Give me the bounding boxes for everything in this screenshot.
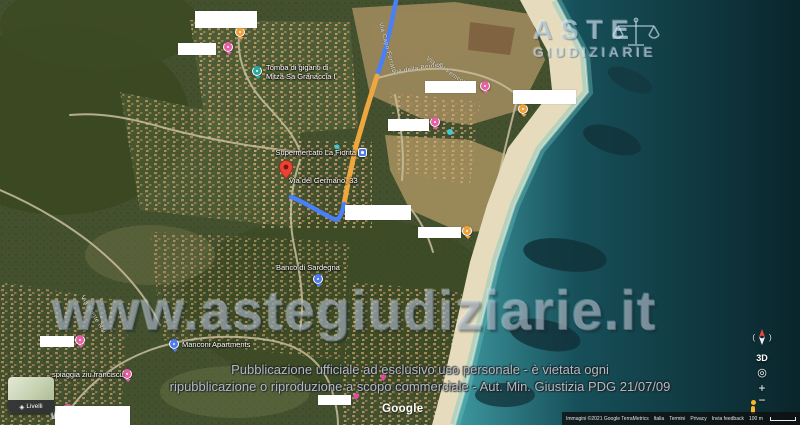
my-location-icon[interactable]: ◎ [748,368,776,379]
disclaimer-line1: Pubblicazione ufficiale ad esclusivo uso… [130,362,710,379]
poi-pin-lodging[interactable] [480,81,490,91]
watermark-text: www.astegiudiziarie.it [52,278,657,343]
map-controls: ( ) 3D ◎ + − [748,329,776,405]
rotate-left-icon[interactable]: ( [752,333,755,342]
feedback-link[interactable]: Invia feedback [712,416,744,422]
scale-bar [770,417,796,421]
map-viewport: Via Capo Ferrato Via della Pernice Via M… [0,0,800,425]
redaction-box [513,90,576,104]
pegman-head [751,400,756,405]
rotate-right-icon[interactable]: ) [769,333,772,342]
poi-label-supermarket[interactable]: Supermercato La Fiorita [272,148,356,157]
redaction-box [418,227,461,238]
terms-link[interactable]: Termini [669,416,685,422]
redaction-box [178,43,216,55]
redaction-box [40,336,74,347]
redaction-box [195,11,257,28]
zoom-in-button[interactable]: + [748,383,776,393]
compass-needle-icon[interactable] [756,329,768,345]
layers-control[interactable]: ◈ Livelli [8,377,54,413]
layers-label: Livelli [26,403,42,410]
poi-pin-shopping[interactable] [235,27,245,37]
poi-label-bank[interactable]: Banco di Sardegna [276,263,340,272]
poi-label-tomba[interactable]: Tomba di giganti di Mitza Sa Granaccia I [266,63,336,81]
layers-icon: ◈ [19,403,24,411]
destination-address-label[interactable]: Via del Germano, 33 [289,176,358,185]
poi-pin-shopping[interactable] [462,226,472,236]
3d-toggle-button[interactable]: 3D [748,353,776,363]
poi-pin-lodging[interactable] [430,117,440,127]
redaction-box [318,395,351,405]
disclaimer-line2: ripubblicazione o riproduzione a scopo c… [130,379,710,396]
scales-of-justice-icon [610,17,662,49]
legal-disclaimer: Pubblicazione ufficiale ad esclusivo uso… [130,362,710,395]
country-label: Italia [654,416,665,422]
poi-label-beach[interactable]: spiaggia ziu franciscu [52,370,124,379]
redaction-box [425,81,476,93]
poi-pin-lodging[interactable] [223,42,233,52]
poi-pin-shopping[interactable] [518,104,528,114]
poi-pin-attraction[interactable] [252,66,262,76]
imagery-credits: Immagini ©2021 Google TerraMetrics,Immag… [566,416,649,422]
privacy-link[interactable]: Privacy [690,416,706,422]
compass-control[interactable]: ( ) [748,329,776,345]
redaction-box [55,406,130,425]
scale-label: 100 m [749,416,763,422]
attribution-bar: Immagini ©2021 Google TerraMetrics,Immag… [562,412,800,425]
redaction-box [388,119,429,131]
redaction-box [345,205,411,220]
google-logo: Google [382,403,423,415]
poi-icon-supermarket[interactable] [358,148,367,157]
